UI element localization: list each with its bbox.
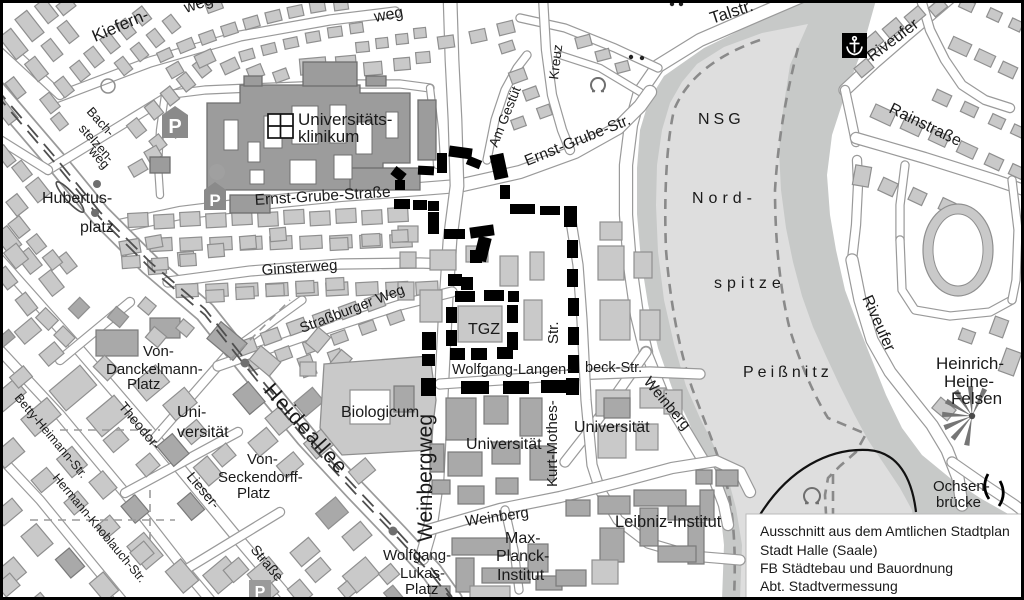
svg-text:Ochsen-: Ochsen- [933, 478, 990, 495]
svg-text:Platz: Platz [127, 376, 160, 393]
svg-text:Str.: Str. [545, 321, 562, 344]
svg-text:Lukas-: Lukas- [400, 565, 445, 582]
svg-text:TGZ: TGZ [468, 321, 500, 338]
svg-text:NSG: NSG [698, 111, 745, 128]
svg-text:Leibniz-Institut: Leibniz-Institut [615, 513, 722, 531]
svg-text:beck-Str.: beck-Str. [585, 360, 642, 376]
svg-text:Uni-: Uni- [177, 404, 206, 421]
svg-text:Biologicum: Biologicum [341, 404, 419, 421]
svg-text:Peißnitz: Peißnitz [743, 364, 833, 381]
svg-text:Kurt-Mothes-: Kurt-Mothes- [544, 400, 561, 487]
svg-text:FB Städtebau und Bauordnung: FB Städtebau und Bauordnung [760, 560, 953, 576]
svg-text:spitze: spitze [714, 275, 786, 292]
svg-text:Seckendorff-: Seckendorff- [218, 469, 303, 486]
svg-text:Heinrich-: Heinrich- [936, 354, 1004, 373]
svg-text:P: P [209, 191, 220, 210]
svg-text:Universität: Universität [574, 419, 650, 436]
svg-text:platz: platz [80, 219, 114, 236]
svg-text:Planck-: Planck- [496, 548, 549, 565]
svg-text:versität: versität [177, 424, 229, 441]
svg-text:klinikum: klinikum [298, 127, 359, 146]
svg-text:Abt. Stadtvermessung: Abt. Stadtvermessung [760, 578, 898, 594]
svg-text:Nord-: Nord- [692, 190, 757, 207]
svg-text:Weinbergweg: Weinbergweg [414, 414, 437, 542]
svg-text:Max-: Max- [505, 530, 541, 547]
svg-text:Stadt Halle (Saale): Stadt Halle (Saale) [760, 542, 878, 558]
svg-text:Ausschnitt aus dem Amtlichen S: Ausschnitt aus dem Amtlichen Stadtplan [760, 523, 1010, 539]
svg-text:P: P [168, 116, 181, 138]
svg-text:Hubertus-: Hubertus- [42, 190, 112, 207]
svg-text:Von-: Von- [143, 343, 174, 360]
svg-text:Felsen: Felsen [951, 389, 1002, 408]
svg-text:Von-: Von- [247, 451, 278, 468]
svg-text:Platz: Platz [237, 485, 270, 502]
svg-text:Wolfgang-Langen-: Wolfgang-Langen- [452, 362, 571, 378]
svg-text:Universität: Universität [466, 436, 542, 453]
svg-text:brücke: brücke [936, 494, 981, 511]
svg-text:Institut: Institut [497, 567, 545, 584]
svg-text:Wolfgang-: Wolfgang- [383, 547, 451, 564]
svg-text:Platz: Platz [405, 581, 438, 598]
